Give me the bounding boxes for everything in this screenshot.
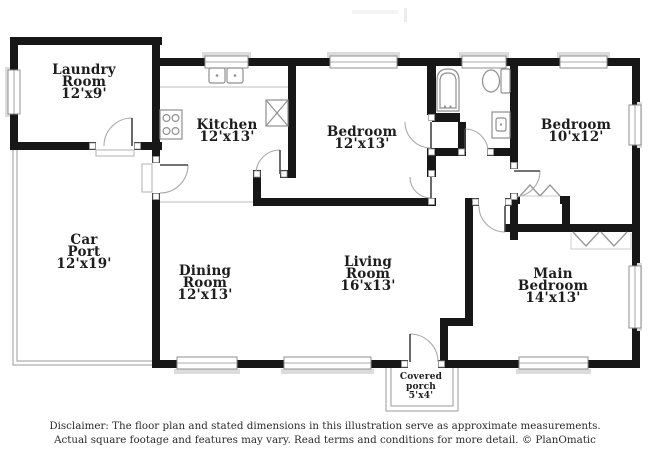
window-mainbed-bottom (516, 357, 591, 374)
window-laundry-west (5, 67, 20, 117)
window-bedroom2-east (629, 102, 642, 148)
stove-burners (160, 110, 182, 139)
vanity-sink (492, 112, 510, 138)
door-bathroom (465, 129, 488, 152)
room-dims: 12'x13' (197, 131, 258, 143)
toilet (483, 69, 511, 93)
window-kitchen-top (202, 52, 251, 68)
bifold-main-bedroom-closet (571, 232, 631, 249)
disclaimer-line-1: Disclaimer: The floor plan and stated di… (0, 420, 650, 434)
door-main-bedroom (479, 206, 505, 232)
door-bedroom1 (410, 177, 431, 198)
door-bedroom1-closet (405, 122, 431, 148)
window-living-bottom (281, 357, 374, 374)
room-label-bedroom2: Bedroom 10'x12' (541, 119, 611, 143)
window-bathroom-top (459, 52, 509, 68)
room-dims: 12'x19' (56, 258, 111, 270)
floor-plan-page: Laundry Room 12'x9' Kitchen 12'x13' Bedr… (0, 0, 650, 473)
door-carport-entry (160, 165, 188, 193)
window-bedroom1-top (327, 52, 400, 68)
kitchen-sink (209, 68, 243, 83)
room-dims: 10'x12' (541, 131, 611, 143)
scan-artifacts (352, 8, 407, 22)
door-laundry (104, 118, 132, 146)
room-label-covered-porch: Covered porch 5'x4' (400, 373, 442, 402)
disclaimer-line-2: Actual square footage and features may v… (0, 434, 650, 448)
room-label-carport: Car Port 12'x19' (56, 234, 111, 270)
room-dims: 16'x13' (340, 280, 395, 292)
room-label-dining: Dining Room 12'x13' (177, 265, 232, 301)
bathtub (437, 69, 459, 111)
room-dims: 14'x13' (518, 292, 588, 304)
water-heater (266, 100, 288, 126)
window-mainbed-east (629, 263, 642, 331)
room-label-bedroom1: Bedroom 12'x13' (327, 126, 397, 150)
room-label-kitchen: Kitchen 12'x13' (197, 119, 258, 143)
closet-bifold-doors (520, 185, 631, 249)
window-bedroom2-top (557, 52, 610, 68)
room-dims: 12'x13' (327, 138, 397, 150)
room-label-laundry: Laundry Room 12'x9' (52, 64, 116, 100)
room-dims: 12'x9' (52, 88, 116, 100)
doors (104, 118, 540, 362)
room-label-main-bedroom: Main Bedroom 14'x13' (518, 268, 588, 304)
room-label-living: Living Room 16'x13' (340, 256, 395, 292)
room-dims: 12'x13' (177, 289, 232, 301)
door-thresholds (96, 150, 152, 192)
window-dining-bottom (174, 357, 240, 374)
disclaimer: Disclaimer: The floor plan and stated di… (0, 420, 650, 447)
door-porch-exterior (410, 334, 438, 362)
room-dims: 5'x4' (400, 392, 442, 402)
